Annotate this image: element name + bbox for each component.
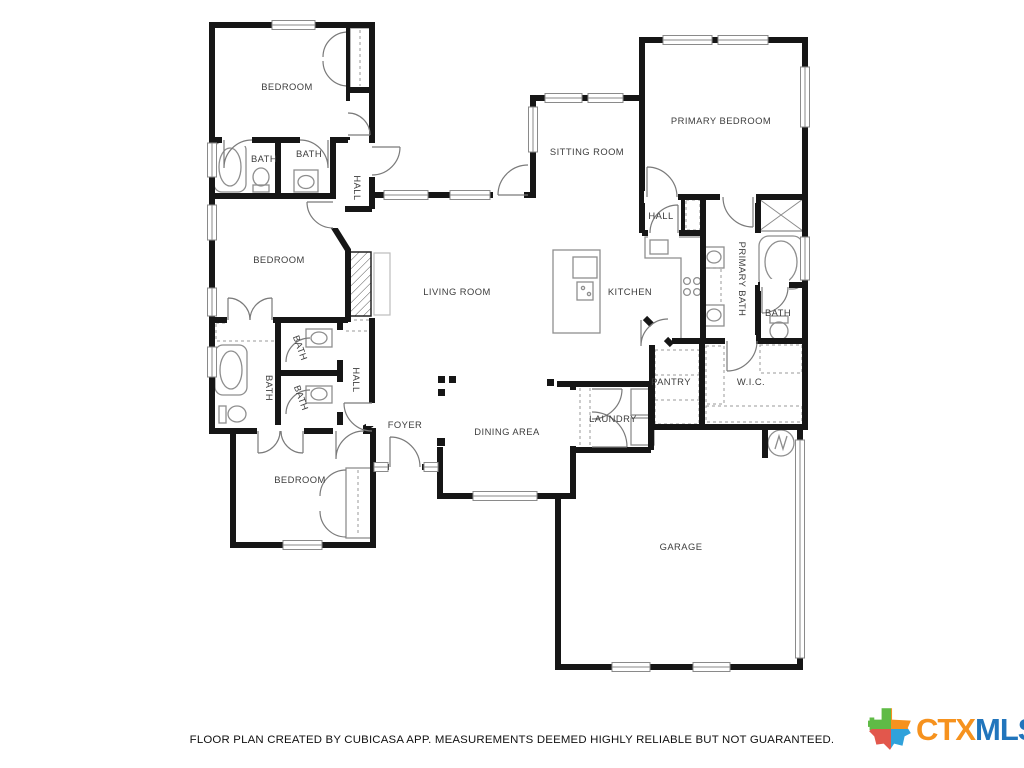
window bbox=[529, 107, 538, 152]
room-label-kitchen: KITCHEN bbox=[608, 286, 652, 297]
room-label-bedroom-mid: BEDROOM bbox=[253, 254, 305, 265]
room-label-bath-right: BATH bbox=[765, 307, 791, 318]
window bbox=[801, 67, 810, 127]
faucet-dot bbox=[587, 292, 590, 295]
room-label-hall-lower: HALL bbox=[351, 367, 362, 392]
room-label-bedroom-top: BEDROOM bbox=[261, 81, 313, 92]
window bbox=[545, 94, 582, 103]
stove-burner bbox=[694, 278, 701, 285]
window bbox=[588, 94, 623, 103]
window bbox=[612, 663, 650, 672]
sink bbox=[298, 176, 314, 189]
island-cabinet bbox=[573, 257, 597, 278]
post bbox=[547, 379, 554, 386]
room-label-primary-bedroom: PRIMARY BEDROOM bbox=[671, 115, 771, 126]
toilet-bowl bbox=[253, 168, 269, 186]
closet-door-arc bbox=[320, 511, 346, 537]
wardrobe bbox=[706, 406, 802, 422]
window bbox=[718, 36, 768, 45]
vanity-counter bbox=[704, 268, 721, 305]
floor-plan-page: BEDROOM BATH BATH HALL SITTING ROOM PRIM… bbox=[0, 0, 1024, 768]
toilet-bowl bbox=[770, 322, 788, 340]
room-label-pantry: PANTRY bbox=[651, 376, 691, 387]
stove-burner bbox=[684, 289, 691, 296]
kitchen-sink bbox=[650, 240, 668, 254]
ctxmls-logo: CTXMLS bbox=[868, 707, 1024, 751]
water-heater-coil bbox=[775, 436, 787, 449]
room-label-bath-mid-left: BATH bbox=[264, 375, 275, 401]
texas-icon bbox=[868, 707, 914, 751]
sink bbox=[707, 309, 721, 321]
room-label-sitting-room: SITTING ROOM bbox=[550, 146, 624, 157]
window bbox=[208, 288, 217, 316]
window bbox=[473, 492, 537, 501]
window bbox=[663, 36, 712, 45]
room-label-living-room: LIVING ROOM bbox=[423, 286, 490, 297]
sink bbox=[311, 388, 327, 400]
kitchen-counter bbox=[645, 237, 703, 340]
post bbox=[438, 389, 445, 396]
garage-door bbox=[796, 440, 805, 658]
stove-burner bbox=[684, 278, 691, 285]
logo-mls-text: MLS bbox=[975, 712, 1024, 747]
window bbox=[283, 541, 322, 550]
faucet-dot bbox=[581, 286, 584, 289]
room-label-laundry: LAUNDRY bbox=[589, 413, 637, 424]
closet-door-arc bbox=[323, 32, 348, 57]
room-label-bath-top-left: BATH bbox=[251, 153, 277, 164]
room-label-primary-bath: PRIMARY BATH bbox=[737, 242, 748, 317]
window bbox=[693, 663, 730, 672]
fixtures-layer bbox=[214, 28, 803, 538]
wardrobe bbox=[706, 346, 724, 404]
room-label-hall-top: HALL bbox=[352, 175, 363, 200]
window bbox=[272, 21, 315, 30]
window bbox=[424, 463, 438, 472]
wall-segment bbox=[333, 140, 348, 322]
logo-wordmark: CTXMLS bbox=[916, 714, 1024, 745]
room-label-dining-area: DINING AREA bbox=[474, 426, 540, 437]
fireplace bbox=[349, 252, 371, 316]
window bbox=[450, 191, 490, 200]
bathtub-basin bbox=[219, 148, 241, 186]
bathtub-basin bbox=[220, 351, 242, 389]
island-sink bbox=[577, 282, 593, 300]
stove-burner bbox=[694, 289, 701, 296]
bathtub-basin bbox=[765, 241, 797, 283]
wardrobe bbox=[760, 345, 802, 373]
room-label-bath-small-2: BATH bbox=[292, 384, 311, 412]
room-label-hall-right: HALL bbox=[648, 210, 673, 221]
window bbox=[384, 191, 428, 200]
window bbox=[208, 143, 217, 177]
post bbox=[449, 376, 456, 383]
window bbox=[801, 237, 810, 280]
wall-segment-diagonal bbox=[645, 318, 672, 345]
logo-ctx-text: CTX bbox=[916, 712, 975, 747]
floor-plan-drawing: BEDROOM BATH BATH HALL SITTING ROOM PRIM… bbox=[0, 0, 1024, 768]
room-label-wic: W.I.C. bbox=[737, 376, 765, 387]
room-label-garage: GARAGE bbox=[660, 541, 703, 552]
closet-door-arc bbox=[323, 61, 348, 86]
toilet-tank bbox=[219, 406, 226, 423]
wall-segment bbox=[440, 447, 561, 496]
room-label-bath-top-mid: BATH bbox=[296, 148, 322, 159]
post bbox=[437, 438, 445, 446]
window bbox=[208, 205, 217, 240]
sink bbox=[707, 251, 721, 263]
pantry-shelves bbox=[655, 350, 699, 424]
sink bbox=[311, 332, 327, 344]
window bbox=[374, 463, 388, 472]
room-label-bedroom-bottom: BEDROOM bbox=[274, 474, 326, 485]
toilet-bowl bbox=[228, 406, 246, 422]
hall-closet bbox=[686, 200, 700, 230]
door-arc bbox=[641, 319, 668, 346]
media-niche bbox=[374, 253, 390, 315]
window bbox=[208, 347, 217, 377]
room-label-foyer: FOYER bbox=[388, 419, 423, 430]
post bbox=[438, 376, 445, 383]
